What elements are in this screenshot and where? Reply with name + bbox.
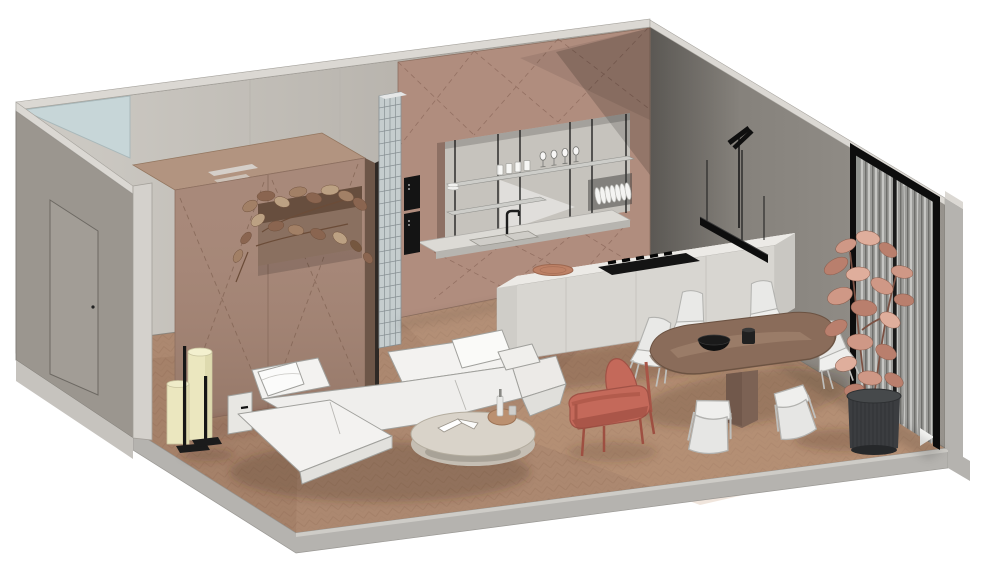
cup: [509, 406, 516, 415]
curtain-right: [897, 180, 932, 444]
door-handle: [91, 305, 94, 308]
built-in-ovens: [404, 175, 420, 255]
island-end: [775, 233, 795, 320]
plate-stack: [447, 183, 459, 190]
render-viewport[interactable]: Apartment interior - axonometric cutaway…: [0, 0, 990, 572]
axon-render: [0, 0, 990, 572]
terracotta-plate: [533, 265, 573, 276]
sofa-tag: [241, 407, 248, 408]
lamp-post: [183, 346, 186, 448]
entry-door: [50, 200, 98, 395]
fluted-planter: [847, 389, 901, 455]
right-wall-outer-face: [945, 198, 963, 462]
wall-cut-face: [133, 183, 152, 440]
bottle: [497, 396, 503, 416]
